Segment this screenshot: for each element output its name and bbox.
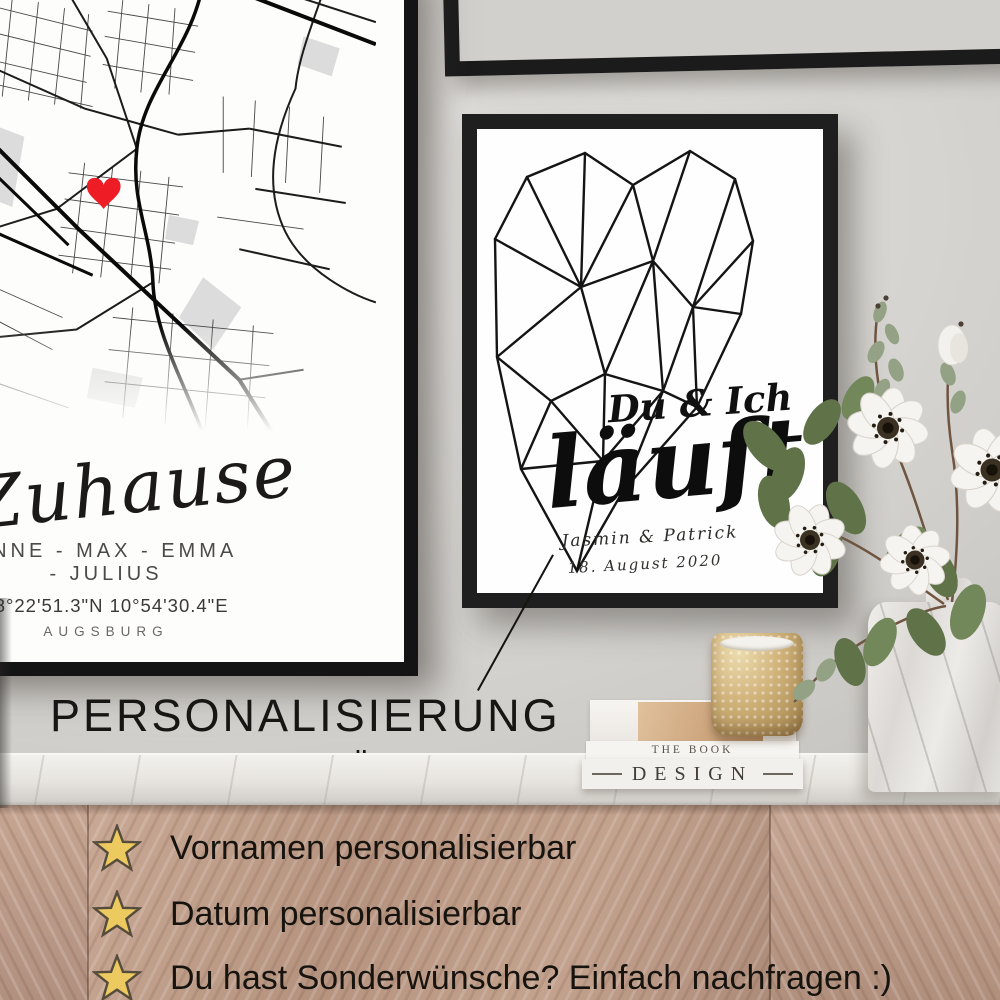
anemone-flowers [763,381,1000,600]
promo-headline-line1: PERSONALISIERUNG [50,690,532,742]
product-photo-scene: Zuhause ANNE - MAX - EMMA - JULIUS 48°22… [0,0,1000,1000]
feature-text: Du hast Sonderwünsche? Einfach nachfrage… [170,959,892,998]
star-icon [92,890,142,938]
wall-left-shadow [0,598,12,808]
feature-item: Du hast Sonderwünsche? Einfach nachfrage… [92,954,892,1000]
feature-text: Datum personalisierbar [170,895,522,934]
map-caption-block: Zuhause ANNE - MAX - EMMA - JULIUS 48°22… [0,454,240,639]
flower-arrangement [730,250,1000,770]
wood-plank-left [0,805,88,1000]
map-poster: Zuhause ANNE - MAX - EMMA - JULIUS 48°22… [0,0,418,676]
map-family-names: ANNE - MAX - EMMA - JULIUS [0,540,240,586]
feature-text: Vornamen personalisierbar [170,829,576,868]
top-picture-frame [441,0,1000,77]
map-title: Zuhause [0,440,243,540]
spine-rule-right [763,773,793,775]
feature-item: Datum personalisierbar [92,890,522,938]
map-city: AUGSBURG [0,624,240,639]
wood-seam [87,805,89,1000]
flower-bud [938,325,968,365]
spine-rule-left [592,773,622,775]
map-coordinates: 48°22'51.3"N 10°54'30.4"E [0,595,240,617]
book-spine-label: THE BOOK [652,744,734,756]
map-heart-marker-icon [87,178,121,209]
counter-edge-shadow [0,805,1000,815]
star-icon [92,954,142,1000]
star-icon [92,824,142,872]
feature-item: Vornamen personalisierbar [92,824,576,872]
map-fade-overlay [0,326,404,446]
